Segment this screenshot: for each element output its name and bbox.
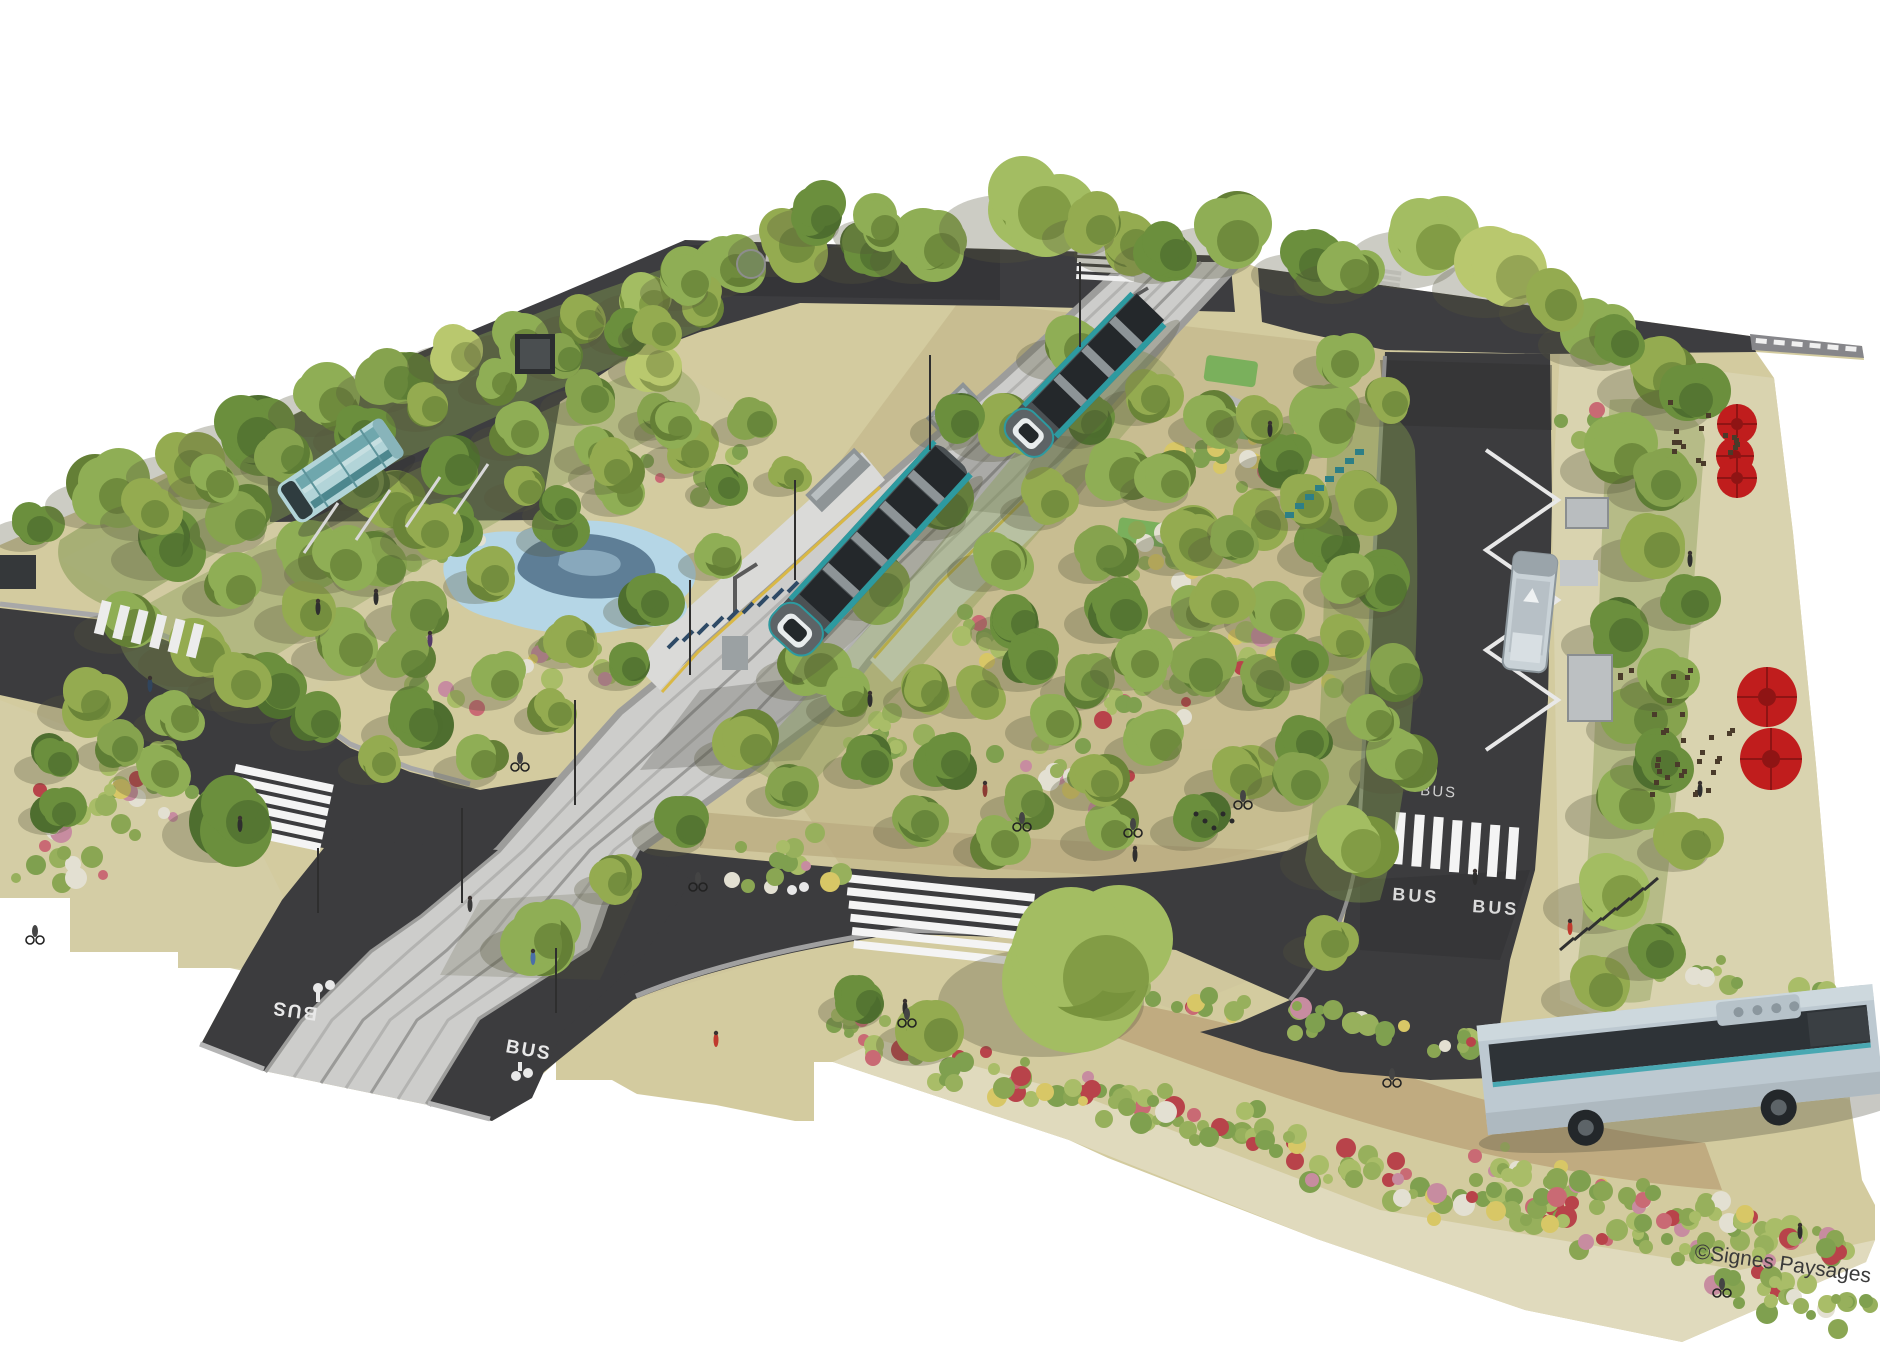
- svg-text:BUS: BUS: [1392, 884, 1440, 907]
- svg-text:BUS: BUS: [1472, 896, 1520, 919]
